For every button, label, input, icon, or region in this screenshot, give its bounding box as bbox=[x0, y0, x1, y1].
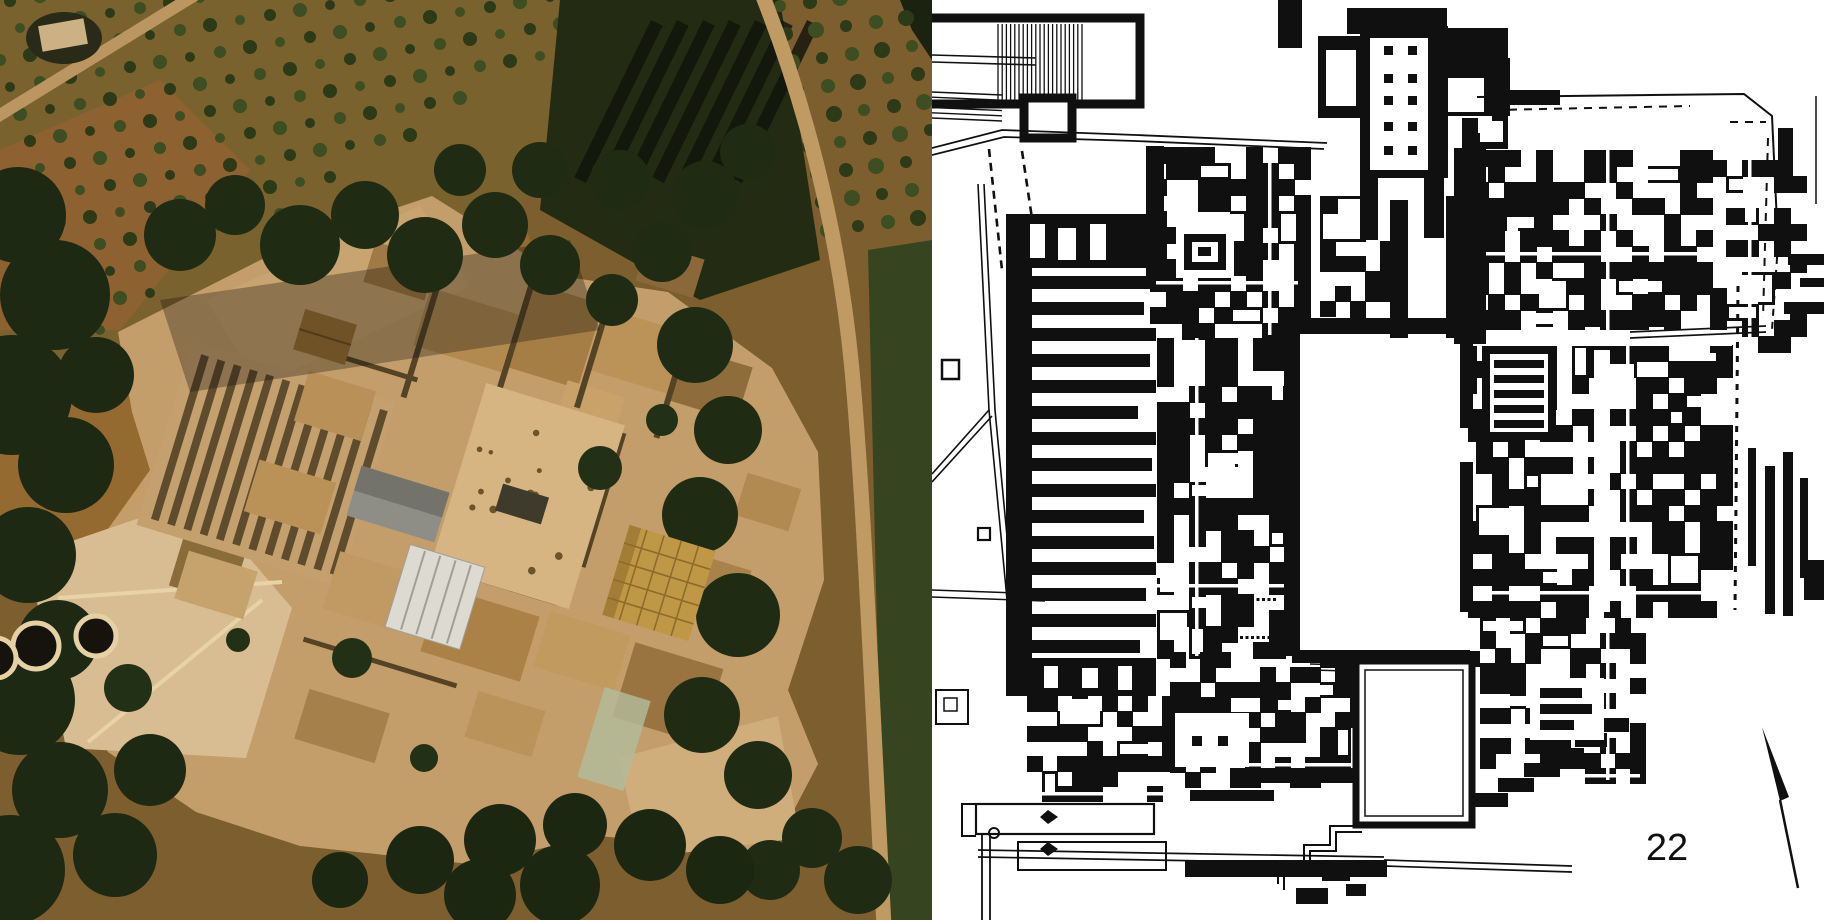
maze-cell bbox=[1182, 291, 1199, 308]
maze-cell bbox=[1350, 256, 1366, 272]
maze-cell bbox=[1269, 450, 1286, 467]
maze-cell bbox=[1215, 682, 1231, 698]
maze-cell bbox=[1253, 434, 1270, 451]
maze-cell bbox=[1185, 682, 1201, 698]
tree-blob bbox=[724, 741, 792, 809]
maze-cell bbox=[1205, 418, 1222, 435]
maze-cell bbox=[1245, 682, 1261, 698]
maze-cell bbox=[1630, 678, 1646, 694]
olive-tree-dot bbox=[887, 99, 901, 113]
east-corridor bbox=[1472, 330, 1732, 346]
court-debris-speckle bbox=[477, 447, 483, 453]
maze-cell bbox=[1320, 241, 1336, 257]
maze-cell bbox=[1652, 505, 1669, 522]
maze-cell bbox=[1253, 354, 1270, 371]
maze-cell bbox=[1630, 738, 1646, 754]
olive-tree-dot bbox=[254, 68, 266, 80]
maze-cell bbox=[1260, 727, 1276, 743]
olive-tree-dot bbox=[840, 20, 852, 32]
maze-cell bbox=[1700, 521, 1717, 538]
court-debris-speckle bbox=[489, 450, 494, 455]
colonnade-dot bbox=[1246, 636, 1249, 639]
olive-tree-dot bbox=[344, 53, 356, 65]
maze-cell bbox=[1275, 682, 1291, 698]
magazine-stripe bbox=[1028, 458, 1152, 471]
olive-tree-dot bbox=[265, 96, 275, 106]
maze-cell bbox=[1684, 409, 1701, 426]
maze-cell bbox=[1572, 409, 1589, 426]
maze-cell bbox=[1221, 354, 1238, 371]
maze-cell bbox=[1492, 537, 1509, 554]
maze-room bbox=[1272, 373, 1283, 400]
olive-tree-dot bbox=[455, 7, 465, 17]
tree-blob bbox=[824, 846, 892, 914]
olive-tree-dot bbox=[134, 2, 146, 14]
olive-tree-dot bbox=[165, 170, 175, 180]
maze-cell bbox=[1716, 345, 1733, 362]
maze-cell bbox=[1205, 386, 1222, 403]
olive-tree-dot bbox=[223, 158, 237, 172]
maze-cell bbox=[1524, 489, 1541, 506]
maze-cell bbox=[1253, 418, 1270, 435]
maze-room bbox=[1575, 348, 1586, 375]
maze-cell bbox=[1221, 546, 1238, 563]
maze-room bbox=[1160, 565, 1187, 592]
maze-cell bbox=[1774, 336, 1791, 353]
maze-cell bbox=[1584, 278, 1601, 295]
maze-cell bbox=[1664, 310, 1681, 327]
maze-cell bbox=[1042, 726, 1058, 742]
maze-corridor bbox=[1606, 618, 1610, 780]
maze-cell bbox=[1508, 601, 1525, 618]
central-court bbox=[1298, 330, 1468, 656]
maze-cell bbox=[1087, 771, 1103, 787]
maze-cell bbox=[1700, 377, 1717, 394]
olive-tree-dot bbox=[535, 51, 545, 61]
maze-cell bbox=[1253, 386, 1270, 403]
maze-room bbox=[1543, 636, 1568, 646]
tree-blob bbox=[114, 734, 186, 806]
maze-corridor bbox=[1606, 150, 1610, 342]
maze-cell bbox=[1365, 271, 1381, 287]
pillar-dot bbox=[1408, 46, 1417, 55]
maze-cell bbox=[1102, 771, 1118, 787]
maze-cell bbox=[1335, 682, 1351, 698]
olive-tree-dot bbox=[852, 220, 864, 232]
maze-cell bbox=[1269, 498, 1286, 515]
maze-cell bbox=[1536, 166, 1553, 183]
olive-tree-dot bbox=[315, 59, 325, 69]
maze-cell bbox=[1790, 224, 1807, 241]
maze-cell bbox=[1198, 195, 1215, 212]
maze-cell bbox=[1214, 307, 1231, 324]
corner-step bbox=[1472, 793, 1508, 807]
olive-tree-dot bbox=[325, 0, 335, 10]
maze-cell bbox=[1568, 310, 1585, 327]
maze-room bbox=[1278, 700, 1303, 710]
maze-cell bbox=[1508, 441, 1525, 458]
magazine-stripe bbox=[1028, 562, 1156, 575]
maze-cell bbox=[1524, 569, 1541, 586]
maze-cell bbox=[1215, 697, 1231, 713]
olive-tree-dot bbox=[105, 266, 115, 276]
maze-cell bbox=[1182, 147, 1199, 164]
maze-cell bbox=[1572, 505, 1589, 522]
maze-cell bbox=[1630, 723, 1646, 739]
maze-cell bbox=[1198, 147, 1215, 164]
maze-room bbox=[1507, 217, 1534, 228]
maze-cell bbox=[1668, 361, 1685, 378]
olive-tree-dot bbox=[434, 38, 446, 50]
maze-cell bbox=[1476, 569, 1493, 586]
maze-cell bbox=[1700, 537, 1717, 554]
maze-cell bbox=[1540, 457, 1557, 474]
maze-cell bbox=[1173, 466, 1190, 483]
tree-blob bbox=[58, 337, 134, 413]
maze-cell bbox=[1260, 682, 1276, 698]
olive-tree-dot bbox=[839, 163, 853, 177]
maze-cell bbox=[1246, 243, 1263, 260]
court-debris-speckle bbox=[478, 489, 484, 495]
olive-tree-dot bbox=[906, 40, 918, 52]
maze-cell bbox=[1510, 663, 1526, 679]
maze-cell bbox=[1057, 756, 1073, 772]
maze-cell bbox=[1570, 618, 1586, 634]
maze-cell bbox=[1294, 259, 1311, 276]
maze-cell bbox=[1716, 473, 1733, 490]
maze-corridor bbox=[1195, 338, 1199, 656]
maze-cell bbox=[1480, 633, 1496, 649]
maze-cell bbox=[1636, 377, 1653, 394]
magazine-stripe bbox=[1028, 380, 1156, 393]
olive-tree-dot bbox=[143, 114, 157, 128]
maze-cell bbox=[1275, 712, 1291, 728]
maze-cell bbox=[1042, 696, 1058, 712]
tree-blob bbox=[590, 150, 650, 210]
maze-room bbox=[1495, 508, 1522, 535]
maze-cell bbox=[1157, 466, 1174, 483]
olive-tree-dot bbox=[345, 140, 355, 150]
maze-cell bbox=[1664, 262, 1681, 279]
olive-tree-dot bbox=[183, 136, 197, 150]
maze-cell bbox=[1132, 696, 1148, 712]
olive-tree-dot bbox=[133, 173, 147, 187]
tree-blob bbox=[73, 813, 157, 897]
maze-cell bbox=[1716, 425, 1733, 442]
olive-tree-dot bbox=[808, 22, 824, 38]
maze-cell bbox=[1652, 441, 1669, 458]
maze-cell bbox=[1246, 147, 1263, 164]
maze-cell bbox=[1488, 150, 1505, 167]
magazine-stripe bbox=[1028, 276, 1156, 289]
maze-cell bbox=[1570, 648, 1586, 664]
maze-cell bbox=[1205, 434, 1222, 451]
maze-cell bbox=[1215, 652, 1231, 668]
maze-cell bbox=[1572, 537, 1589, 554]
maze-cell bbox=[1716, 537, 1733, 554]
maze-cell bbox=[1305, 697, 1321, 713]
maze-cell bbox=[1790, 320, 1807, 337]
olive-tree-dot bbox=[484, 1, 496, 13]
olive-tree-dot bbox=[324, 171, 336, 183]
olive-tree-dot bbox=[214, 46, 226, 58]
maze-cell bbox=[1027, 756, 1043, 772]
maze-cell bbox=[1269, 642, 1286, 659]
maze-cell bbox=[1616, 182, 1633, 199]
maze-cell bbox=[1166, 147, 1183, 164]
tree-blob bbox=[632, 222, 692, 282]
maze-room bbox=[1539, 281, 1566, 308]
maze-cell bbox=[1182, 307, 1199, 324]
magazine-stripe bbox=[1028, 510, 1144, 523]
maze-cell bbox=[1632, 198, 1649, 215]
olive-tree-dot bbox=[916, 94, 932, 110]
maze-room bbox=[1208, 453, 1235, 480]
olive-tree-dot bbox=[203, 18, 217, 32]
maze-cell bbox=[1221, 610, 1238, 627]
tree-blob bbox=[331, 181, 399, 249]
olive-tree-dot bbox=[826, 106, 842, 122]
pillar-dot bbox=[1408, 96, 1417, 105]
colonnade-dot bbox=[1268, 636, 1271, 639]
maze-cell bbox=[1758, 224, 1775, 241]
maze-cell bbox=[1294, 195, 1311, 212]
maze-room bbox=[1480, 121, 1503, 142]
maze-cell bbox=[1636, 345, 1653, 362]
maze-cell bbox=[1700, 457, 1717, 474]
maze-cell bbox=[1488, 198, 1505, 215]
olive-tree-dot bbox=[294, 90, 306, 102]
maze-cell bbox=[1684, 457, 1701, 474]
maze-cell bbox=[1221, 626, 1238, 643]
maze-cell bbox=[1696, 198, 1713, 215]
olive-tree-dot bbox=[105, 8, 115, 18]
maze-cell bbox=[1320, 727, 1336, 743]
olive-tree-dot bbox=[869, 15, 883, 29]
olive-tree-dot bbox=[153, 55, 167, 69]
maze-cell bbox=[1648, 294, 1665, 311]
maze-cell bbox=[1636, 393, 1653, 410]
maze-cell bbox=[1630, 633, 1646, 649]
olive-tree-dot bbox=[910, 210, 926, 226]
maze-cell bbox=[1185, 697, 1201, 713]
maze-cell bbox=[1508, 569, 1525, 586]
tree-blob bbox=[386, 826, 454, 894]
tree-blob bbox=[434, 144, 486, 196]
maze-cell bbox=[1510, 678, 1526, 694]
maze-cell bbox=[1170, 652, 1186, 668]
magazine-stripe bbox=[1028, 536, 1154, 549]
maze-cell bbox=[1584, 150, 1601, 167]
colonnade-dot bbox=[1257, 598, 1260, 601]
maze-cell bbox=[1680, 182, 1697, 199]
maze-room bbox=[1150, 774, 1165, 784]
maze-cell bbox=[1492, 489, 1509, 506]
olive-tree-dot bbox=[863, 131, 877, 145]
maze-cell bbox=[1157, 370, 1174, 387]
maze-cell bbox=[1221, 370, 1238, 387]
olive-tree-dot bbox=[495, 29, 505, 39]
maze-cell bbox=[1237, 498, 1254, 515]
maze-cell bbox=[1615, 753, 1631, 769]
maze-cell bbox=[1237, 402, 1254, 419]
olive-tree-dot bbox=[445, 66, 455, 76]
maze-cell bbox=[1726, 240, 1743, 257]
olive-tree-dot bbox=[423, 10, 437, 24]
olive-tree-dot bbox=[898, 10, 914, 26]
maze-cell bbox=[1636, 505, 1653, 522]
maze-cell bbox=[1716, 457, 1733, 474]
olive-tree-dot bbox=[876, 188, 888, 200]
maze-cell bbox=[1664, 230, 1681, 247]
maze-cell bbox=[1524, 601, 1541, 618]
tree-blob bbox=[586, 274, 638, 326]
maze-cell bbox=[1680, 262, 1697, 279]
maze-cell bbox=[1157, 514, 1174, 531]
maze-cell bbox=[1504, 182, 1521, 199]
maze-cell bbox=[1488, 214, 1505, 231]
maze-cell bbox=[1157, 546, 1174, 563]
maze-room bbox=[1201, 166, 1212, 177]
court-debris-speckle bbox=[469, 504, 475, 510]
southeast-room-bars bbox=[1530, 678, 1604, 740]
maze-cell bbox=[1205, 338, 1222, 355]
tree-blob bbox=[144, 199, 216, 271]
olive-tree-dot bbox=[83, 210, 97, 224]
maze-cell bbox=[1246, 227, 1263, 244]
aerial-photo bbox=[0, 0, 932, 920]
maze-room bbox=[1607, 364, 1634, 391]
kouloura-pit bbox=[13, 623, 59, 669]
olive-tree-dot bbox=[193, 77, 207, 91]
lone-tree bbox=[226, 628, 250, 652]
magazine-stripe bbox=[1028, 484, 1156, 497]
maze-cell bbox=[1480, 663, 1496, 679]
olive-tree-dot bbox=[275, 37, 285, 47]
maze-cell bbox=[1552, 230, 1569, 247]
maze-room bbox=[1338, 199, 1363, 224]
maze-room bbox=[1543, 572, 1570, 583]
maze-cell bbox=[1214, 179, 1231, 196]
maze-cell bbox=[1556, 537, 1573, 554]
maze-cell bbox=[1585, 648, 1601, 664]
olive-tree-dot bbox=[384, 75, 396, 87]
maze-cell bbox=[1504, 278, 1521, 295]
maze-cell bbox=[1668, 601, 1685, 618]
olive-tree-dot bbox=[405, 44, 415, 54]
olive-tree-dot bbox=[53, 129, 67, 143]
maze-cell bbox=[1132, 756, 1148, 772]
maze-cell bbox=[1335, 667, 1351, 683]
magazine-stripe bbox=[1028, 640, 1140, 653]
maze-cell bbox=[1680, 198, 1697, 215]
maze-cell bbox=[1668, 425, 1685, 442]
maze-cell bbox=[1520, 294, 1537, 311]
maze-cell bbox=[1102, 756, 1118, 772]
maze-cell bbox=[1584, 294, 1601, 311]
olive-tree-dot bbox=[305, 118, 315, 128]
maze-cell bbox=[1700, 601, 1717, 618]
maze-cell bbox=[1147, 756, 1163, 772]
maze-cell bbox=[1480, 753, 1496, 769]
maze-cell bbox=[1269, 402, 1286, 419]
floor-plan-panel: 22 bbox=[932, 0, 1824, 920]
maze-cell bbox=[1520, 230, 1537, 247]
olive-tree-dot bbox=[453, 91, 467, 105]
lone-tree bbox=[332, 638, 372, 678]
olive-tree-dot bbox=[124, 61, 136, 73]
maze-room bbox=[1511, 460, 1522, 471]
maze-cell bbox=[1205, 514, 1222, 531]
maze-cell bbox=[1157, 498, 1174, 515]
maze-cell bbox=[1246, 211, 1263, 228]
maze-cell bbox=[1198, 179, 1215, 196]
maze-cell bbox=[1237, 386, 1254, 403]
maze-cell bbox=[1173, 498, 1190, 515]
maze-cell bbox=[1170, 682, 1186, 698]
maze-cell bbox=[1162, 696, 1178, 712]
maze-cell bbox=[1710, 160, 1727, 177]
maze-cell bbox=[1556, 425, 1573, 442]
olive-tree-dot bbox=[115, 207, 125, 217]
maze-cell bbox=[1350, 301, 1366, 317]
maze-cell bbox=[1205, 562, 1222, 579]
maze-room bbox=[1160, 613, 1187, 640]
maze-cell bbox=[1294, 243, 1311, 260]
maze-cell bbox=[1157, 450, 1174, 467]
maze-cell bbox=[1253, 466, 1270, 483]
olive-tree-dot bbox=[74, 98, 86, 110]
colonnade-dot bbox=[1251, 598, 1254, 601]
maze-room bbox=[1729, 179, 1756, 190]
maze-room bbox=[1240, 453, 1251, 464]
maze-cell bbox=[1668, 489, 1685, 506]
maze-cell bbox=[1290, 712, 1306, 728]
olive-tree-dot bbox=[394, 16, 406, 28]
olive-tree-dot bbox=[134, 260, 146, 272]
maze-cell bbox=[1237, 562, 1254, 579]
olive-tree-dot bbox=[85, 126, 95, 136]
maze-cell bbox=[1536, 150, 1553, 167]
tree-blob bbox=[664, 677, 740, 753]
maze-cell bbox=[1294, 163, 1311, 180]
maze-cell bbox=[1480, 738, 1496, 754]
court-debris-speckle bbox=[533, 430, 540, 437]
maze-cell bbox=[1684, 441, 1701, 458]
maze-cell bbox=[1492, 569, 1509, 586]
maze-cell bbox=[1253, 642, 1270, 659]
maze-cell bbox=[1214, 195, 1231, 212]
olive-tree-dot bbox=[892, 126, 908, 142]
colonnade-dot bbox=[1240, 636, 1243, 639]
maze-cell bbox=[1269, 610, 1286, 627]
maze-room bbox=[1635, 169, 1678, 180]
olive-tree-dot bbox=[95, 67, 105, 77]
maze-cell bbox=[1536, 182, 1553, 199]
maze-cell bbox=[1166, 291, 1183, 308]
olive-tree-dot bbox=[5, 82, 15, 92]
maze-cell bbox=[1221, 530, 1238, 547]
colonnade-dot bbox=[1262, 598, 1265, 601]
olive-tree-dot bbox=[821, 79, 835, 93]
maze-cell bbox=[1492, 457, 1509, 474]
maze-cell bbox=[1205, 626, 1222, 643]
corner-step bbox=[1524, 763, 1560, 777]
maze-cell bbox=[1525, 738, 1541, 754]
court-debris-speckle bbox=[537, 468, 542, 473]
maze-cell bbox=[1584, 262, 1601, 279]
maze-cell bbox=[1524, 537, 1541, 554]
